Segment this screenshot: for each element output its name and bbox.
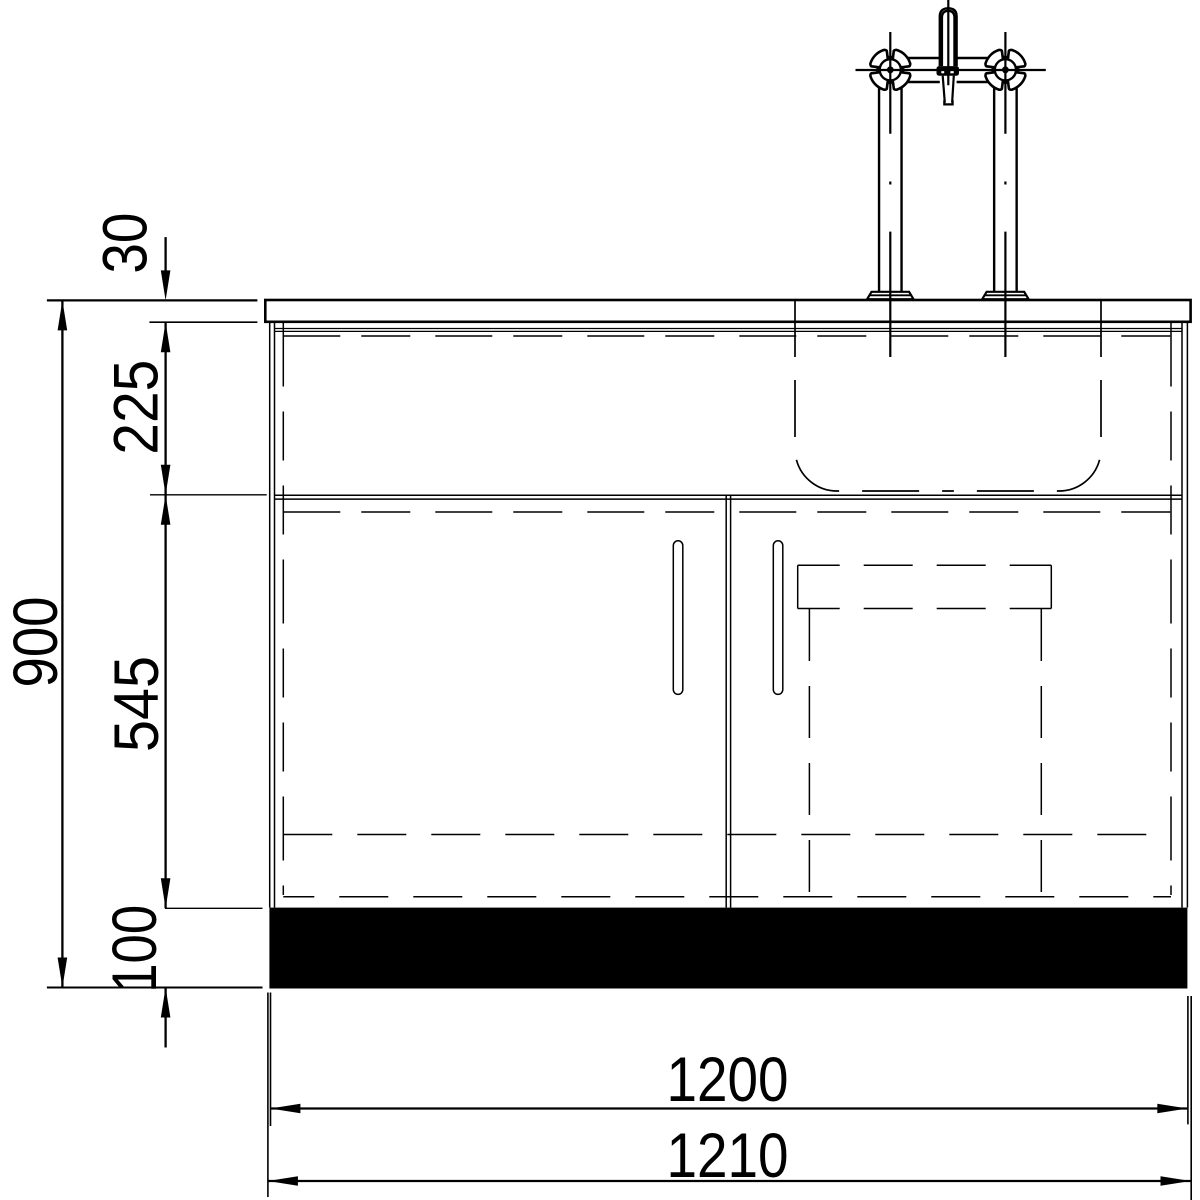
svg-text:545: 545 xyxy=(102,656,172,752)
svg-text:225: 225 xyxy=(101,360,171,455)
svg-text:900: 900 xyxy=(1,597,71,688)
svg-text:1210: 1210 xyxy=(667,1121,789,1191)
svg-text:1200: 1200 xyxy=(667,1045,789,1115)
svg-text:100: 100 xyxy=(100,905,170,993)
svg-text:30: 30 xyxy=(91,213,161,274)
